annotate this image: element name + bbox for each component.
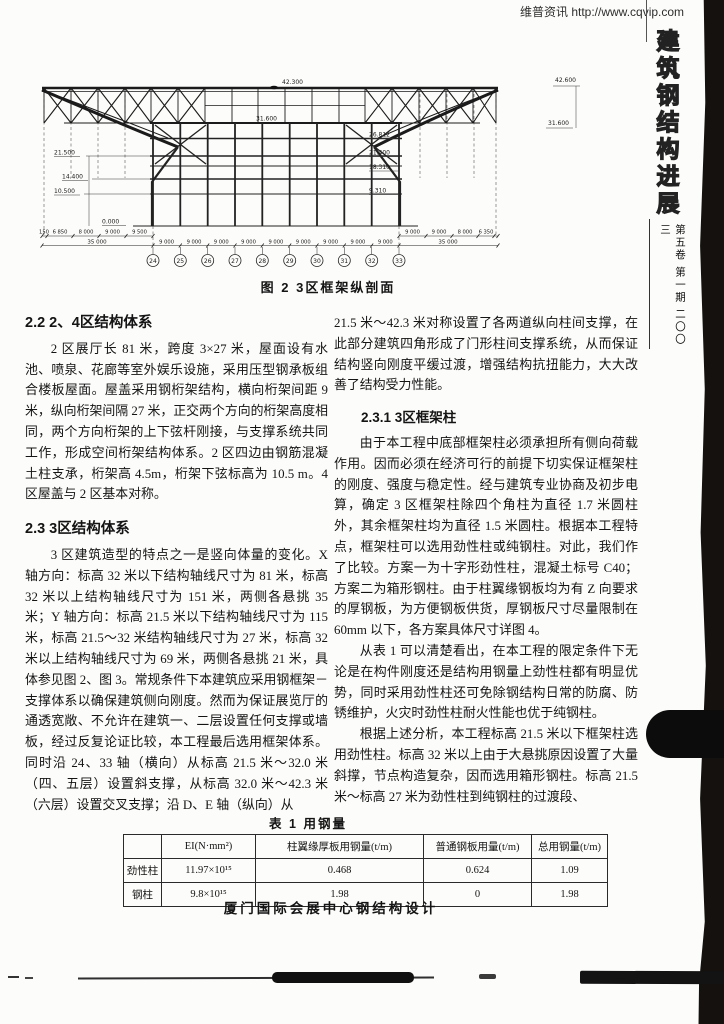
paragraph: 根据上述分析，本工程标高 21.5 米以下框架柱选用劲性柱。标高 32 米以上由… bbox=[334, 724, 638, 807]
elevation-label: 21.400 bbox=[369, 150, 390, 157]
elevation-label: 9.310 bbox=[369, 188, 386, 195]
row-label: 劲性柱 bbox=[124, 859, 162, 883]
scan-edge-band bbox=[698, 0, 724, 1024]
table-title: 表 1 用钢量 bbox=[123, 813, 493, 832]
bay-dim: 9 000 bbox=[323, 240, 338, 246]
table-cell: 1.09 bbox=[532, 859, 608, 883]
scan-smudge bbox=[479, 974, 496, 979]
table-header-row: EI(N·mm²) 柱翼缘厚板用钢量(t/m) 普通钢板用量(t/m) 总用钢量… bbox=[124, 835, 608, 859]
bay-dim: 9 000 bbox=[241, 240, 256, 246]
section-heading-2-2: 2.2 2、4区结构体系 bbox=[25, 313, 328, 334]
elevation-label: 42.600 bbox=[555, 77, 576, 84]
elevation-label: 26.812 bbox=[369, 132, 390, 139]
dim-total: 35 000 bbox=[87, 240, 107, 246]
table-header-cell: EI(N·mm²) bbox=[162, 835, 256, 859]
elevation-label: 42.300 bbox=[282, 79, 303, 86]
scan-tab-blob bbox=[646, 710, 724, 758]
elevation-drawing: 42.300 42.600 31.600 31.600 26.812 21.40… bbox=[28, 70, 628, 282]
grid-bubble-label: 29 bbox=[286, 258, 294, 265]
figure-caption: 图 2 3区框架纵剖面 bbox=[28, 277, 628, 296]
dim-total: 35 000 bbox=[438, 240, 458, 246]
dim-label: 150 bbox=[39, 230, 49, 236]
spine-rule-mid bbox=[649, 219, 650, 349]
scanned-journal-page: 维普资讯 http://www.cqvip.com 建 筑 钢 结 构 进 展 … bbox=[0, 0, 724, 1024]
elevation-label: 0.000 bbox=[102, 219, 119, 226]
table-header-cell: 总用钢量(t/m) bbox=[532, 835, 608, 859]
grid-bubble-label: 24 bbox=[149, 258, 157, 265]
journal-title-char: 进 bbox=[652, 163, 684, 190]
table-header-cell: 普通钢板用量(t/m) bbox=[424, 835, 532, 859]
dim-label: 6 350 bbox=[479, 230, 494, 236]
elevation-label: 21.500 bbox=[54, 150, 75, 157]
grid-bubbles: 24 25 26 27 28 29 30 31 32 33 bbox=[147, 255, 405, 267]
grid-bubble-label: 31 bbox=[340, 258, 348, 265]
elevation-label: 31.600 bbox=[256, 116, 277, 123]
elevation-label: 14.400 bbox=[62, 174, 83, 181]
grid-bubble-label: 26 bbox=[204, 258, 212, 265]
table-cell: 0.624 bbox=[424, 859, 532, 883]
journal-title-char: 结 bbox=[652, 109, 684, 136]
building-x-bracing bbox=[155, 125, 397, 164]
scan-smudge bbox=[580, 971, 724, 985]
figure-2-frame-elevation: 42.300 42.600 31.600 31.600 26.812 21.40… bbox=[28, 70, 628, 282]
grid-bubble-label: 28 bbox=[258, 258, 266, 265]
paragraph: 由于本工程中底部框架柱必须承担所有侧向荷载作用。因而必须在经济可行的前提下切实保… bbox=[334, 433, 638, 641]
paragraph: 从表 1 可以清楚看出，在本工程的限定条件下无论是在构件刚度还是结构用钢量上劲性… bbox=[334, 641, 638, 724]
journal-title-vertical: 建 筑 钢 结 构 进 展 bbox=[652, 28, 684, 217]
bay-dim: 9 000 bbox=[187, 240, 202, 246]
table-header-cell: 柱翼缘厚板用钢量(t/m) bbox=[256, 835, 424, 859]
issue-info-vertical: 第五卷 第一期 二〇〇三 bbox=[657, 224, 687, 354]
journal-title-char: 建 bbox=[652, 28, 684, 55]
grid-bubble-label: 33 bbox=[395, 258, 403, 265]
table-row: 劲性柱 11.97×10¹⁵ 0.468 0.624 1.09 bbox=[124, 859, 608, 883]
dim-label: 8 000 bbox=[79, 230, 94, 236]
scan-smudge bbox=[272, 972, 414, 983]
journal-title-char: 钢 bbox=[652, 82, 684, 109]
bay-dim: 9 000 bbox=[296, 240, 311, 246]
grid-bubble-label: 27 bbox=[231, 258, 239, 265]
dim-label: 6 850 bbox=[53, 230, 68, 236]
paragraph: 2 区展厅长 81 米，跨度 3×27 米，屋面设有水池、喷泉、花廊等室外娱乐设… bbox=[25, 339, 328, 505]
grid-bubble-label: 32 bbox=[368, 258, 376, 265]
journal-title-char: 展 bbox=[652, 190, 684, 217]
dim-label: 8 000 bbox=[458, 230, 473, 236]
bay-dim: 9 000 bbox=[378, 240, 393, 246]
journal-title-char: 构 bbox=[652, 136, 684, 163]
paragraph: 3 区建筑造型的特点之一是竖向体量的变化。X 轴方向：标高 32 米以下结构轴线… bbox=[25, 545, 328, 815]
elevation-label: 18.310 bbox=[369, 164, 390, 171]
grid-bubble-label: 30 bbox=[313, 258, 321, 265]
scan-smudge bbox=[8, 976, 19, 978]
bay-dim: 9 000 bbox=[214, 240, 229, 246]
bay-dim: 9 000 bbox=[350, 240, 365, 246]
section-heading-2-3: 2.3 3区结构体系 bbox=[25, 519, 328, 540]
table-header-cell bbox=[124, 835, 162, 859]
dim-label: 9 000 bbox=[432, 230, 447, 236]
bay-dim: 9 000 bbox=[159, 240, 174, 246]
right-text-column: 21.5 米～42.3 米对称设置了各两道纵向柱间支撑，在此部分建筑四角形成了门… bbox=[334, 313, 638, 807]
roof-node-blob bbox=[270, 86, 278, 90]
table-cell: 11.97×10¹⁵ bbox=[162, 859, 256, 883]
dim-label: 9 000 bbox=[405, 230, 420, 236]
scan-smudge bbox=[25, 977, 33, 979]
spine-rule-top bbox=[646, 0, 647, 42]
table-cell: 0.468 bbox=[256, 859, 424, 883]
journal-title-char: 筑 bbox=[652, 55, 684, 82]
elevation-labels: 42.300 42.600 31.600 31.600 26.812 21.40… bbox=[54, 77, 576, 226]
elevation-label: 10.500 bbox=[54, 188, 75, 195]
article-footer-title: 厦门国际会展中心钢结构设计 bbox=[25, 897, 637, 917]
grid-bubble-label: 25 bbox=[176, 258, 184, 265]
bay-dim: 9 000 bbox=[268, 240, 283, 246]
section-heading-2-3-1: 2.3.1 3区框架柱 bbox=[334, 408, 638, 429]
paragraph: 21.5 米～42.3 米对称设置了各两道纵向柱间支撑，在此部分建筑四角形成了门… bbox=[334, 313, 638, 396]
elevation-label: 31.600 bbox=[548, 120, 569, 127]
left-text-column: 2.2 2、4区结构体系 2 区展厅长 81 米，跨度 3×27 米，屋面设有水… bbox=[25, 313, 328, 815]
watermark-text: 维普资讯 http://www.cqvip.com bbox=[520, 3, 720, 20]
dim-label: 9 500 bbox=[132, 230, 147, 236]
dim-label: 9 000 bbox=[105, 230, 120, 236]
